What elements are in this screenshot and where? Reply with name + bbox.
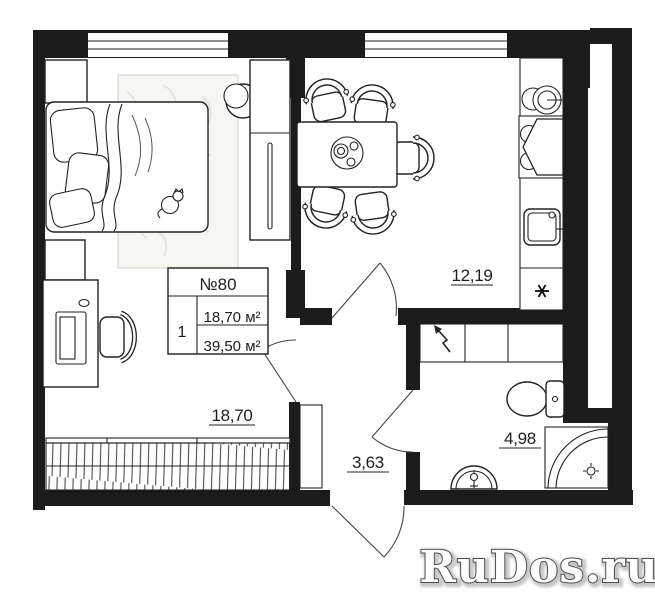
bathroom-closets (420, 324, 563, 362)
watermark-text: RuDos.ru (419, 542, 655, 593)
bathroom-left-wall-lower (406, 452, 420, 490)
rooms-count: 1 (178, 324, 187, 341)
desk-icon (43, 280, 98, 387)
bathroom-right-wall (608, 423, 632, 505)
top-wall-pier-middle (228, 30, 365, 58)
floor-plan: 18,70 (0, 0, 655, 600)
bedroom-area-label: 18,70 (211, 406, 252, 425)
kitchen: 12,19 (297, 58, 569, 310)
kitchen-wall-pier-left (300, 308, 332, 325)
tray-icon (331, 137, 363, 169)
bathroom-bottom-wall (404, 490, 633, 505)
info-table: №80 1 18,70 м² 39,50 м² (168, 268, 268, 355)
dining-set (297, 78, 431, 234)
mouse-icon (79, 300, 89, 307)
living-area: 18,70 м² (203, 309, 260, 326)
bed-icon (46, 102, 208, 232)
wardrobe-tall (250, 60, 290, 240)
watermark: RuDos.ru RuDos.ru (419, 542, 655, 595)
bedroom-bottom-wall (33, 490, 330, 506)
kitchen-right-wall (563, 58, 588, 413)
entry-door (332, 506, 404, 557)
bedroom-window (88, 41, 228, 58)
hall-cabinet (300, 405, 322, 488)
bathroom-area-label: 4,98 (504, 429, 536, 448)
left-wall (33, 30, 45, 510)
chair-icon (348, 190, 398, 234)
nightstand-top (45, 60, 87, 103)
toilet-icon (507, 381, 564, 417)
kitchen-door (332, 263, 396, 318)
chair-icon (301, 78, 354, 125)
kitchen-counter (519, 58, 569, 310)
chair-icon (393, 135, 431, 181)
kitchen-area-label: 12,19 (451, 266, 492, 285)
bath-sink-icon (451, 466, 497, 489)
hall-area-label: 3,63 (352, 453, 384, 472)
shower-icon (545, 427, 608, 488)
nightstand-bottom (45, 240, 85, 280)
hall: 3,63 (262, 263, 413, 557)
bathroom-door (372, 390, 413, 452)
chair-icon (300, 183, 353, 230)
wardrobe-hatched (46, 438, 290, 490)
floor-plan-page: 18,70 (0, 0, 655, 600)
kitchen-window (365, 41, 507, 58)
total-area: 39,50 м² (203, 338, 260, 355)
right-wall-step (563, 408, 632, 423)
stove-icon (519, 116, 563, 178)
wardrobe-handle (268, 143, 272, 229)
bedroom-door-pier (289, 402, 300, 490)
desk-chair-icon (100, 313, 135, 361)
outer-right-wall (612, 33, 632, 423)
unit-number: №80 (199, 275, 236, 294)
bathroom-left-wall-upper (406, 318, 420, 390)
